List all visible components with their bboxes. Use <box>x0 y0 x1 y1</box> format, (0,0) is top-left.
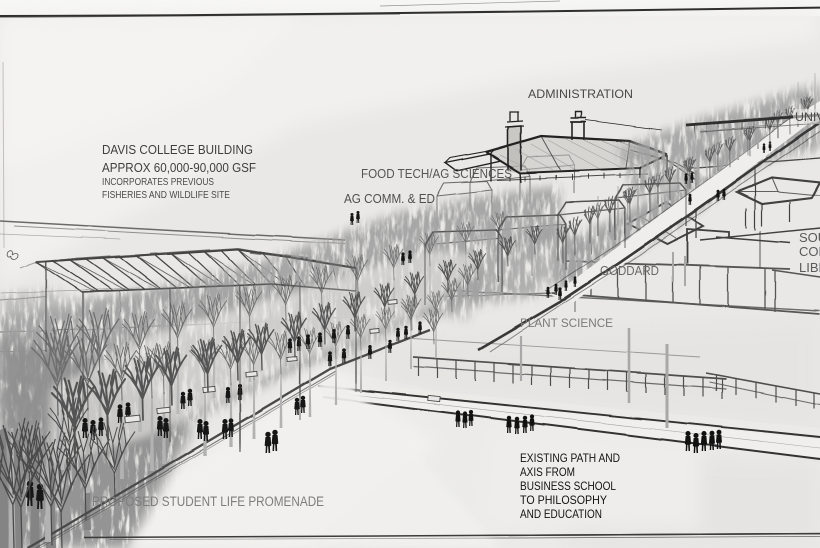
svg-text:TO PHILOSOPHY: TO PHILOSOPHY <box>520 494 607 507</box>
svg-text:AND EDUCATION: AND EDUCATION <box>520 508 602 521</box>
svg-text:EXISTING PATH AND: EXISTING PATH AND <box>520 452 620 465</box>
svg-text:PROPOSED STUDENT LIFE PROMENAD: PROPOSED STUDENT LIFE PROMENADE <box>92 494 324 509</box>
svg-text:FOOD TECH/AG SCIENCES: FOOD TECH/AG SCIENCES <box>361 167 512 181</box>
svg-text:PLANT SCIENCE: PLANT SCIENCE <box>520 316 613 330</box>
svg-text:AXIS FROM: AXIS FROM <box>520 466 575 479</box>
svg-text:DAVIS COLLEGE BUILDING: DAVIS COLLEGE BUILDING <box>102 143 253 157</box>
svg-text:FISHERIES AND WILDLIFE SITE: FISHERIES AND WILDLIFE SITE <box>102 190 230 201</box>
svg-text:INCORPORATES PREVIOUS: INCORPORATES PREVIOUS <box>102 177 214 188</box>
svg-text:UNIVERSITY: UNIVERSITY <box>795 110 820 124</box>
svg-text:SOUTH: SOUTH <box>799 230 820 245</box>
svg-text:AG COMM. & ED: AG COMM. & ED <box>344 192 435 206</box>
svg-text:ADMINISTRATION: ADMINISTRATION <box>528 87 633 101</box>
svg-text:BUSINESS SCHOOL: BUSINESS SCHOOL <box>520 480 616 493</box>
svg-text:GODDARD: GODDARD <box>600 264 659 278</box>
svg-text:APPROX 60,000-90,000 GSF: APPROX 60,000-90,000 GSF <box>102 160 256 175</box>
svg-text:LIBRARY: LIBRARY <box>799 260 820 275</box>
svg-text:COLLEGE: COLLEGE <box>799 244 820 259</box>
